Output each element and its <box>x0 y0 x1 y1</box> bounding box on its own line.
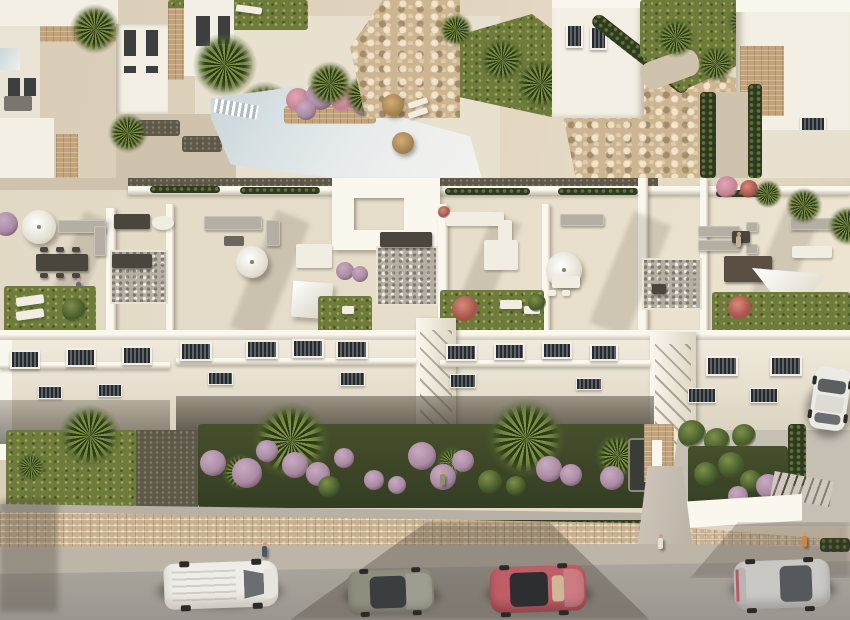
car-seats <box>552 575 565 601</box>
car-windshield <box>779 565 812 602</box>
aerial-render-scene <box>0 0 850 620</box>
pedestrian <box>440 474 445 485</box>
white-van <box>163 556 281 614</box>
wheel <box>843 414 848 423</box>
wheel <box>499 565 509 570</box>
wheel <box>501 612 511 617</box>
wheel <box>559 610 569 615</box>
wheel <box>411 567 420 572</box>
wheel <box>179 561 189 567</box>
vehicles-and-people <box>0 0 850 620</box>
wheel <box>805 606 815 611</box>
red-coupe <box>489 562 591 615</box>
car-cabin-glass <box>369 576 406 609</box>
wheel <box>361 612 370 617</box>
olive-hatchback <box>347 566 439 617</box>
pedestrian <box>262 546 267 557</box>
wheel <box>803 557 813 562</box>
wheel <box>747 608 757 613</box>
silver-hatchback <box>733 556 835 611</box>
wheel <box>253 603 263 609</box>
van-roof-ribs <box>172 570 237 602</box>
pedestrian <box>658 538 663 549</box>
van-hood <box>263 568 278 598</box>
wheel <box>413 610 422 615</box>
wheel <box>359 569 368 574</box>
wheel <box>557 563 567 568</box>
wheel <box>251 559 261 565</box>
car-hood-highlight <box>563 568 584 607</box>
car-hood-highlight <box>405 573 432 610</box>
car-roof-glass <box>509 572 548 607</box>
white-parked-car <box>805 363 850 436</box>
wheel <box>745 559 755 564</box>
pedestrian <box>802 536 807 547</box>
wheel <box>181 605 191 611</box>
